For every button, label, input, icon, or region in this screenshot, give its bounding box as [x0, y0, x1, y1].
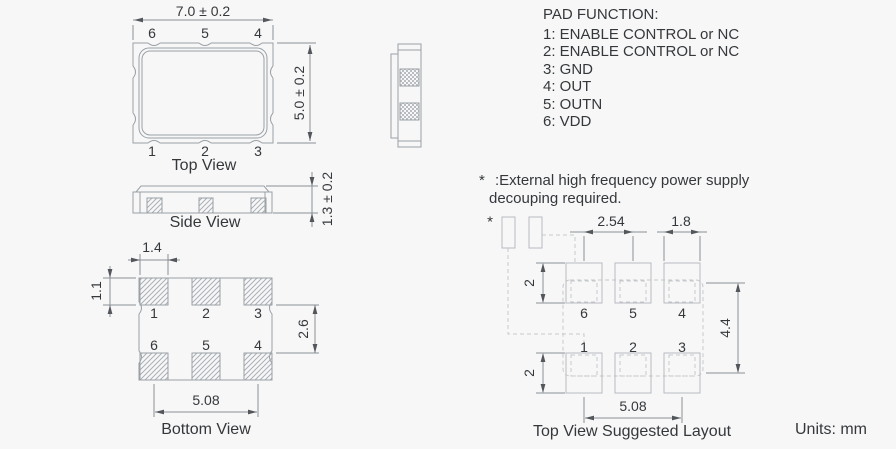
layout-land-pads — [566, 263, 700, 393]
bottom-view-pin-2-label: 2 — [202, 306, 210, 320]
technical-drawing: 7.0 ± 0.2 5.0 ± 0.2 6 5 4 1 2 3 Top View… — [0, 0, 896, 449]
layout-pin-6-label: 6 — [580, 306, 588, 320]
layout-row-span-dim: 4.4 — [718, 318, 732, 337]
note-line-1: :External high frequency power supply — [495, 173, 749, 188]
top-view-caption: Top View — [172, 158, 237, 174]
layout-pin-3-label: 3 — [678, 340, 686, 354]
top-view-height-dim: 5.0 ± 0.2 — [292, 66, 306, 120]
top-view-width-dim: 7.0 ± 0.2 — [176, 4, 230, 18]
schematic-svg — [0, 0, 896, 449]
pad-function-item-3: 3: GND — [543, 61, 739, 79]
bottom-view-span-dim: 5.08 — [192, 393, 219, 407]
layout-pad-height-bottom-dim: 2 — [522, 369, 536, 377]
pad-function-item-4: 4: OUT — [543, 78, 739, 96]
layout-span-dim: 5.08 — [619, 399, 646, 413]
side-view-caption: Side View — [170, 215, 241, 231]
layout-pin-1-label: 1 — [580, 340, 588, 354]
top-view-pin-5-label: 5 — [201, 26, 209, 40]
side-view-dimensions — [266, 172, 318, 227]
layout-pad-height-top-dim: 2 — [522, 279, 536, 287]
bottom-view-pad-height-dim: 1.1 — [89, 281, 103, 300]
bottom-view-caption: Bottom View — [161, 422, 251, 438]
layout-caption: Top View Suggested Layout — [533, 424, 731, 440]
bottom-view-pin-6-label: 6 — [150, 338, 158, 352]
top-view-pin-1-label: 1 — [148, 144, 156, 158]
layout-pin-4-label: 4 — [678, 306, 686, 320]
pad-function-list: PAD FUNCTION: 1: ENABLE CONTROL or NC 2:… — [543, 6, 739, 131]
top-view-package — [133, 43, 273, 143]
end-view-package — [391, 44, 421, 147]
units-label: Units: mm — [795, 422, 867, 438]
bottom-view-pin-4-label: 4 — [254, 338, 262, 352]
side-view-thickness-dim: 1.3 ± 0.2 — [320, 172, 334, 226]
layout-asterisk: * — [487, 215, 493, 230]
note-asterisk: * — [479, 173, 485, 188]
top-view-dimensions — [133, 18, 316, 143]
layout-pin-2-label: 2 — [629, 340, 637, 354]
bottom-view-pin-5-label: 5 — [202, 338, 210, 352]
bottom-view-row-gap-dim: 2.6 — [296, 319, 310, 338]
pad-function-item-6: 6: VDD — [543, 113, 739, 131]
pad-function-item-2: 2: ENABLE CONTROL or NC — [543, 43, 739, 61]
top-view-pin-4-label: 4 — [254, 26, 262, 40]
side-view-package — [133, 186, 272, 213]
pad-function-title: PAD FUNCTION: — [543, 6, 739, 24]
pad-function-item-5: 5: OUTN — [543, 96, 739, 114]
layout-pin-5-label: 5 — [629, 306, 637, 320]
top-view-pin-2-label: 2 — [201, 144, 209, 158]
note-line-2: decouping required. — [489, 191, 622, 206]
layout-pad-width-dim: 1.8 — [671, 214, 690, 228]
pad-function-item-1: 1: ENABLE CONTROL or NC — [543, 26, 739, 44]
bottom-view-package — [139, 278, 272, 380]
bottom-view-pin-3-label: 3 — [254, 306, 262, 320]
layout-package-outline — [563, 280, 703, 376]
layout-pitch-dim: 2.54 — [597, 214, 624, 228]
bottom-view-pin-1-label: 1 — [150, 306, 158, 320]
bottom-view-pad-width-dim: 1.4 — [142, 240, 161, 254]
top-view-pin-3-label: 3 — [254, 144, 262, 158]
layout-dimensions — [536, 230, 745, 423]
top-view-pin-6-label: 6 — [148, 26, 156, 40]
